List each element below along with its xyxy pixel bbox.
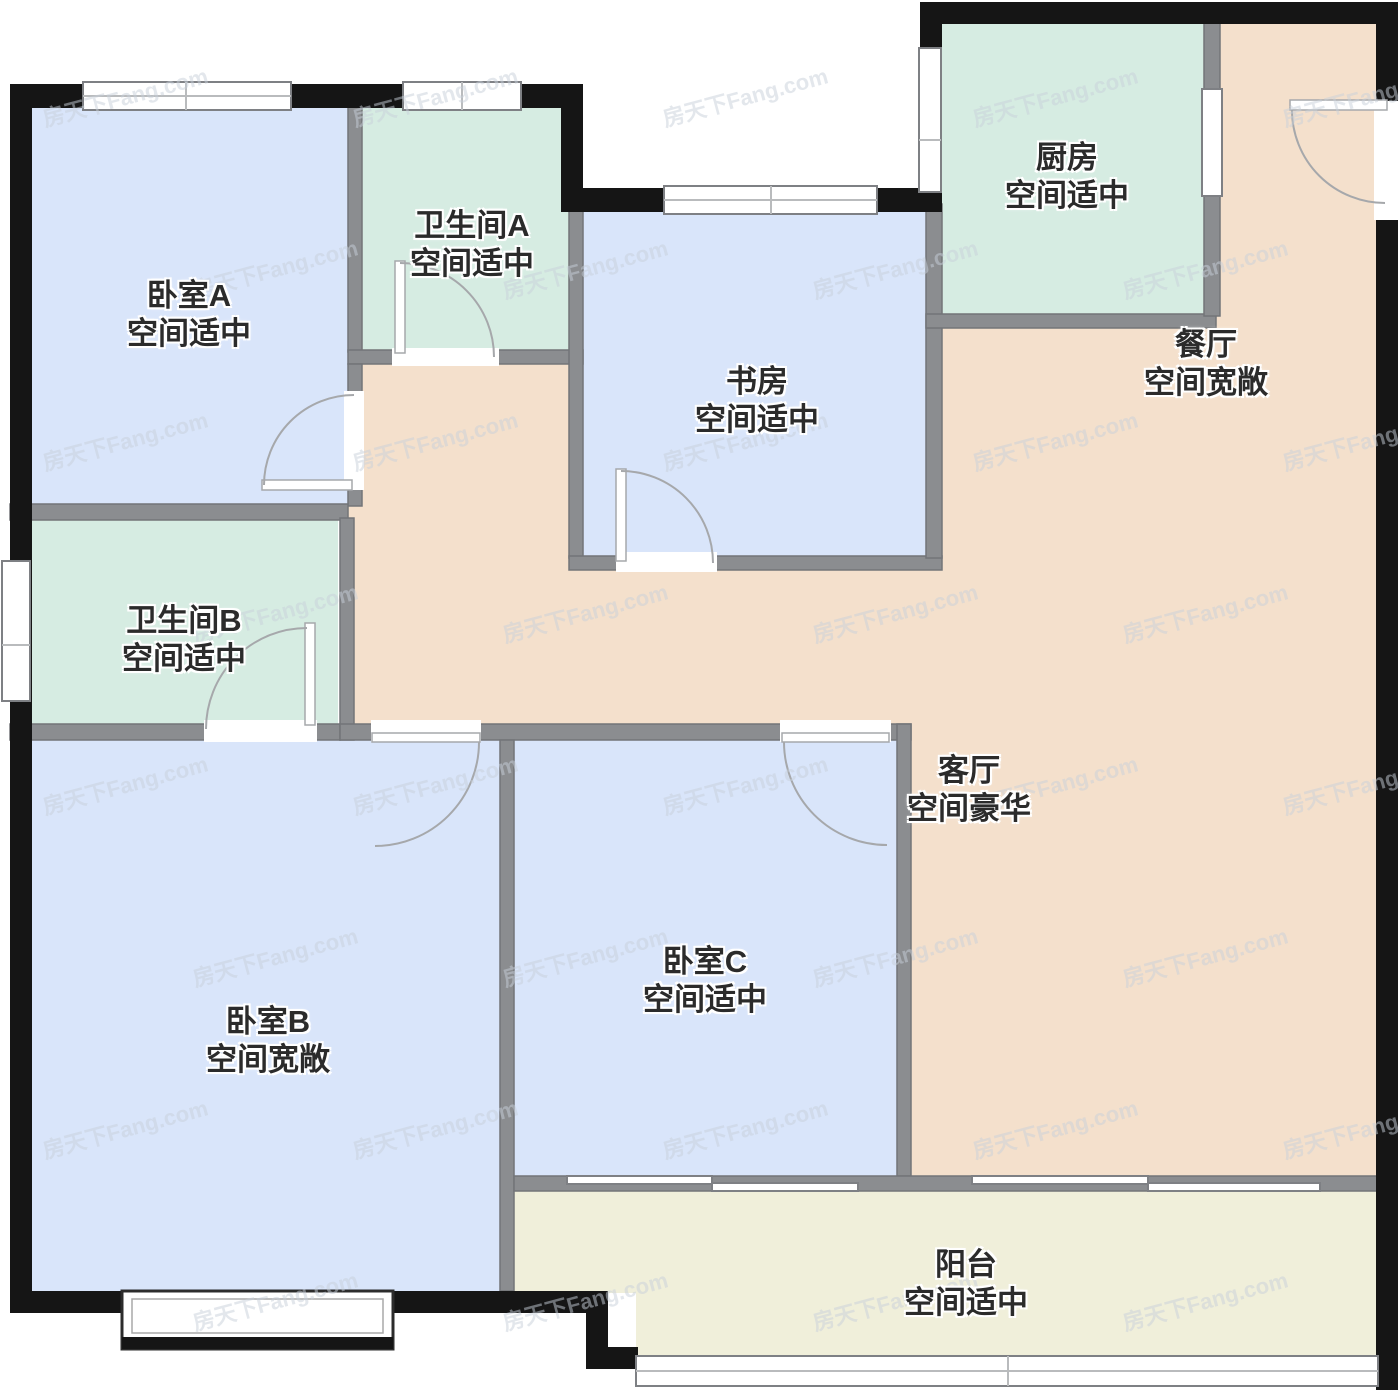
wall-study-left: [569, 208, 583, 558]
bedroom-b-floor: [30, 740, 500, 1291]
doorway-bathroomA: [392, 348, 499, 366]
hall-floor: [569, 556, 942, 740]
balcony-floor: [514, 1191, 1378, 1360]
doorway-bathroomB: [204, 720, 317, 742]
window-kitchen-left: [919, 48, 941, 192]
wall-bedroomA-bathroomB: [10, 504, 348, 520]
bathroom-b-floor: [30, 520, 338, 726]
door-leaf-bathroomB: [305, 623, 315, 725]
door-leaf-bedroomA: [262, 480, 352, 490]
floor-plan: 房天下Fang.com房天下Fang.com房天下Fang.com房天下Fang…: [0, 0, 1400, 1390]
wall-study-right: [926, 204, 942, 558]
bedroom-a-floor: [30, 104, 348, 506]
bay-window-bedroomB: [122, 1291, 393, 1349]
wall-bathroomB-right: [340, 518, 354, 740]
wall-bedroomA-bathroomA: [348, 104, 362, 352]
door-leaf-entrance: [1290, 100, 1387, 110]
bathroom-a-floor: [362, 104, 569, 352]
study-floor: [583, 212, 926, 558]
wall-balcony-step-h: [586, 1347, 638, 1369]
sliding-panel: [972, 1176, 1148, 1184]
door-leaf-bathroomA: [395, 261, 405, 353]
door-leaf-bedroomB: [372, 733, 480, 742]
hall-floor: [348, 350, 583, 740]
door-leaf-bedroomC: [782, 733, 889, 742]
sliding-panel: [712, 1183, 858, 1191]
wall-kitchen-bottom: [926, 314, 1216, 328]
kitchen-floor: [942, 24, 1204, 316]
doorway-bedroomA: [344, 391, 364, 490]
floors: [30, 24, 1382, 1360]
wall-bedroomC-living: [897, 724, 911, 1176]
bay-window-sill: [122, 1337, 393, 1349]
wall-bedroomB-bedroomC: [500, 740, 514, 1291]
bedroom-c-floor: [514, 740, 897, 1176]
sliding-panel: [567, 1176, 712, 1184]
wall-top-right: [920, 2, 1398, 24]
sliding-panel: [1148, 1183, 1320, 1191]
window-bathroomB-left: [2, 561, 30, 701]
doorway-study: [616, 552, 717, 572]
floor-plan-drawing: [0, 0, 1400, 1390]
window-kitchen-dining: [1202, 89, 1222, 196]
door-leaf-study: [616, 469, 626, 561]
